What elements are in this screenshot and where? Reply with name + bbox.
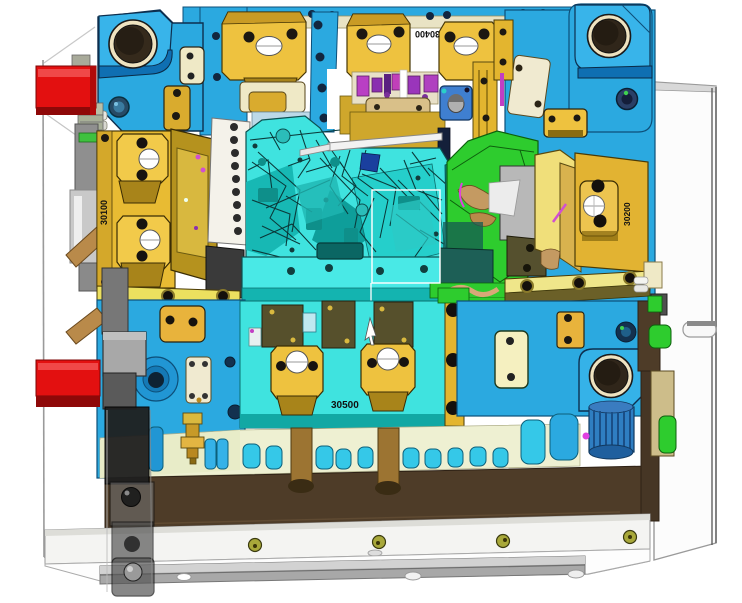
svg-text:30400: 30400 (415, 29, 440, 39)
svg-text:30500: 30500 (331, 400, 359, 411)
svg-text:30200: 30200 (622, 202, 632, 226)
svg-text:30100: 30100 (99, 200, 109, 225)
